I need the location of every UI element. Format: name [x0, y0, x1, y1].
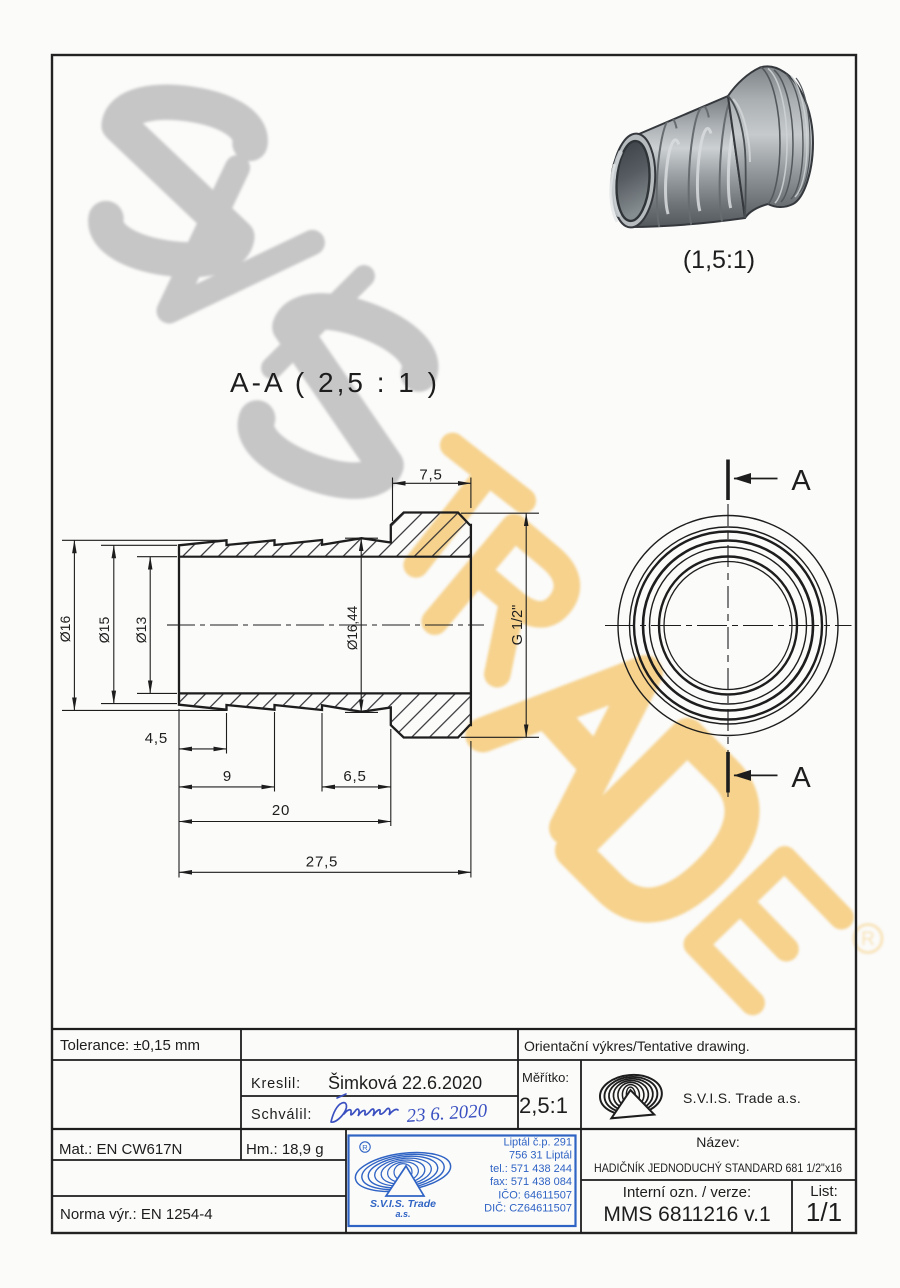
svg-text:Orientační výkres/Tentative dr: Orientační výkres/Tentative drawing.: [524, 1038, 750, 1054]
svg-text:20: 20: [272, 802, 290, 819]
svg-text:Ø15: Ø15: [96, 617, 112, 644]
svg-text:Kreslil:: Kreslil:: [251, 1076, 301, 1092]
svg-text:Ø16,44: Ø16,44: [345, 605, 360, 650]
svg-text:Název:: Název:: [696, 1134, 740, 1150]
svg-text:Schválil:: Schválil:: [251, 1107, 312, 1123]
svg-text:Šimková 22.6.2020: Šimková 22.6.2020: [328, 1072, 482, 1093]
svg-text:2,5:1: 2,5:1: [519, 1093, 568, 1118]
svg-text:6,5: 6,5: [343, 768, 366, 785]
svg-text:tel.: 571 438 244: tel.: 571 438 244: [490, 1163, 572, 1175]
svg-text:(1,5:1): (1,5:1): [683, 246, 755, 274]
svg-text:DIČ: CZ64611507: DIČ: CZ64611507: [484, 1202, 572, 1215]
svg-text:IČO: 64611507: IČO: 64611507: [498, 1188, 572, 1201]
svg-text:9: 9: [223, 768, 231, 785]
svg-text:A: A: [791, 762, 811, 794]
svg-text:a.s.: a.s.: [395, 1209, 410, 1219]
svg-text:A-A ( 2,5 : 1 ): A-A ( 2,5 : 1 ): [230, 367, 440, 398]
svg-text:Ø16: Ø16: [57, 616, 73, 643]
svg-text:G 1/2": G 1/2": [510, 605, 526, 646]
svg-text:27,5: 27,5: [306, 854, 338, 871]
svg-text:MMS 6811216 v.1: MMS 6811216 v.1: [603, 1203, 770, 1226]
svg-text:fax: 571 438 084: fax: 571 438 084: [490, 1176, 572, 1188]
svg-text:Ø13: Ø13: [133, 617, 149, 644]
svg-text:Měřítko:: Měřítko:: [522, 1070, 569, 1085]
svg-text:Norma výr.: EN 1254-4: Norma výr.: EN 1254-4: [60, 1206, 213, 1223]
svg-text:Tolerance: ±0,15 mm: Tolerance: ±0,15 mm: [60, 1037, 200, 1054]
svg-text:756 31 Liptál: 756 31 Liptál: [509, 1150, 572, 1162]
svg-text:Hm.: 18,9 g: Hm.: 18,9 g: [246, 1141, 324, 1158]
svg-text:Interní ozn. / verze:: Interní ozn. / verze:: [623, 1184, 751, 1201]
svg-text:Mat.: EN CW617N: Mat.: EN CW617N: [59, 1141, 182, 1158]
svg-text:S.V.I.S. Trade a.s.: S.V.I.S. Trade a.s.: [683, 1090, 801, 1106]
svg-text:A: A: [791, 465, 811, 497]
svg-text:7,5: 7,5: [419, 467, 442, 484]
svg-text:1/1: 1/1: [806, 1197, 842, 1227]
svg-text:R: R: [362, 1143, 368, 1152]
svg-text:4,5: 4,5: [145, 730, 168, 747]
svg-text:Liptál č.p. 291: Liptál č.p. 291: [504, 1137, 573, 1149]
svg-text:HADIČNÍK JEDNODUCHÝ STANDARD 6: HADIČNÍK JEDNODUCHÝ STANDARD 681 1/2"x16: [594, 1160, 842, 1175]
svg-text:R: R: [861, 929, 875, 950]
